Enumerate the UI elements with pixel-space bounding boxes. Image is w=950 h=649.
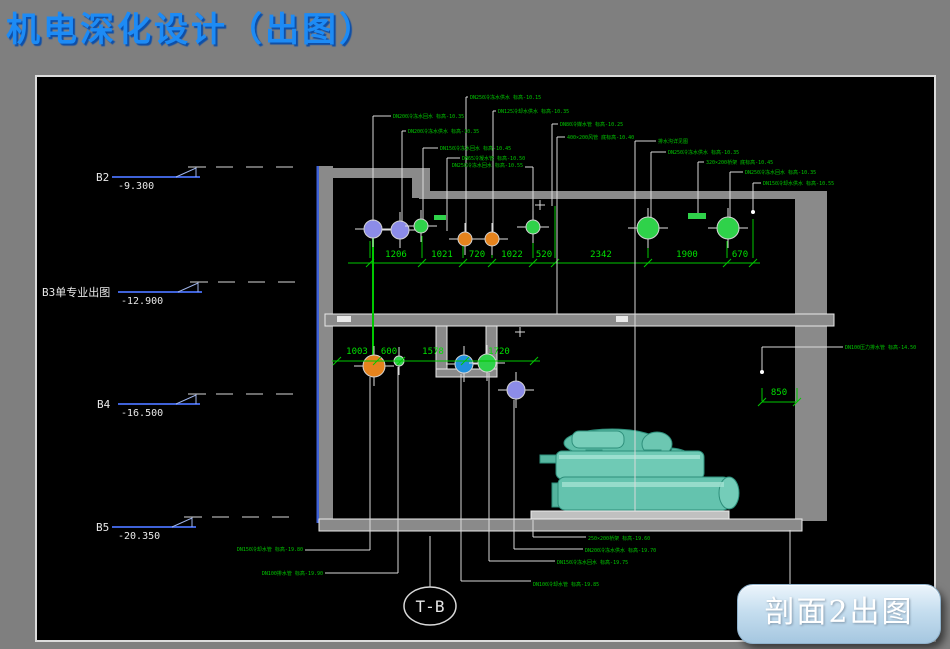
annotation-label: DN150冷冻水回水 标高-10.45 <box>440 145 511 152</box>
pipe-section <box>507 381 525 399</box>
pipe-section <box>526 220 540 234</box>
pipe-section <box>458 232 472 246</box>
right-wall <box>795 191 827 521</box>
level-name: B4 <box>97 398 111 411</box>
annotation-label: 排水沟详见图 <box>658 138 688 145</box>
pipe-section <box>637 217 659 239</box>
dimension-label: 1900 <box>676 250 698 260</box>
annotation-label: 250×200桥架 标高-19.60 <box>588 535 650 542</box>
pipe-section <box>391 221 409 239</box>
dimension-label: 720 <box>469 250 485 260</box>
level-triangle-symbol <box>172 518 192 527</box>
pipe-section <box>364 220 382 238</box>
pipe-section <box>485 232 499 246</box>
annotation-label: DN65冷凝水管 标高-10.50 <box>462 155 525 162</box>
bottom-floor-slab <box>319 519 802 531</box>
dimension-label: 1206 <box>385 250 407 260</box>
annotation-label: DN200冷冻水回水 标高-10.35 <box>393 113 464 120</box>
pipe-section <box>414 219 428 233</box>
middle-floor-slab <box>325 314 834 326</box>
annotation-label: 400×200风管 底标高-10.40 <box>567 134 634 141</box>
dimension-label: 1578 <box>422 347 444 357</box>
annotation-label: DN100压力排水管 标高-14.50 <box>845 344 916 351</box>
annotation-label: DN250冷冻水回水 标高-10.35 <box>745 169 816 176</box>
equipment-base <box>531 511 729 519</box>
annotation-label: DN250冷冻水供水 标高-10.15 <box>470 94 541 101</box>
cad-drawing: 1206102172010225202342190067010036001578… <box>0 0 950 649</box>
level-name: B2 <box>96 171 109 184</box>
duct-symbol <box>688 213 706 219</box>
level-triangle-symbol <box>176 395 196 404</box>
leader-dot <box>760 370 764 374</box>
slab-opening <box>337 316 351 322</box>
dimension-label: 670 <box>732 250 748 260</box>
level-name: B5 <box>96 521 109 534</box>
dimension-label: 1003 <box>346 347 368 357</box>
page-title: 机电深化设计（出图） <box>6 2 376 51</box>
annotation-label: DN250冷冻水回水 标高-10.55 <box>452 162 523 169</box>
level-elevation: -16.500 <box>121 408 163 419</box>
level-triangle-symbol <box>176 168 196 177</box>
dimension-label: 1022 <box>501 250 523 260</box>
pipe-section <box>455 355 473 373</box>
annotation-label: DN80冷媒水管 标高-10.25 <box>560 121 623 128</box>
leader-dot <box>751 210 755 214</box>
annotation-label: DN150冷却水供水 标高-10.55 <box>763 180 834 187</box>
chiller-unit <box>540 429 739 510</box>
grid-bubble-label: T-B <box>416 597 445 616</box>
level-elevation: -12.900 <box>121 296 163 307</box>
level-elevation: -9.300 <box>118 181 154 192</box>
dimension-label: 600 <box>381 347 397 357</box>
annotation-label: DN250冷冻水供水 标高-10.35 <box>668 149 739 156</box>
annotation-label: DN200冷冻水供水 标高-10.35 <box>408 128 479 135</box>
dimension-label: 850 <box>771 388 787 398</box>
annotation-label: DN125冷却水供水 标高-10.35 <box>498 108 569 115</box>
pipe-section <box>717 217 739 239</box>
level-triangle-symbol <box>178 283 198 292</box>
level-elevation: -20.350 <box>118 531 160 542</box>
level-name: B3单专业出图 <box>42 285 110 299</box>
dimension-label: 520 <box>536 250 552 260</box>
annotation-label: 320×200桥架 底标高-10.45 <box>706 159 773 166</box>
ceiling-slab <box>419 191 827 199</box>
section-2-output-button[interactable]: 剖面2出图 <box>737 584 941 644</box>
pipe-section <box>363 355 385 377</box>
slab-opening <box>616 316 628 322</box>
annotation-label: DN200冷冻水供水 标高-19.70 <box>585 547 656 554</box>
left-wall <box>319 166 333 523</box>
annotation-label: DN150冷却水管 标高-19.80 <box>237 546 303 553</box>
dimension-label: 1720 <box>488 347 510 357</box>
annotation-label: DN100排水管 标高-19.90 <box>262 570 323 577</box>
dimension-label: 2342 <box>590 250 612 260</box>
annotation-label: DN150冷冻水回水 标高-19.75 <box>557 559 628 566</box>
annotation-label: DN100冷却水管 标高-19.85 <box>533 581 599 588</box>
duct-symbol <box>434 215 446 220</box>
dimension-label: 1021 <box>431 250 453 260</box>
